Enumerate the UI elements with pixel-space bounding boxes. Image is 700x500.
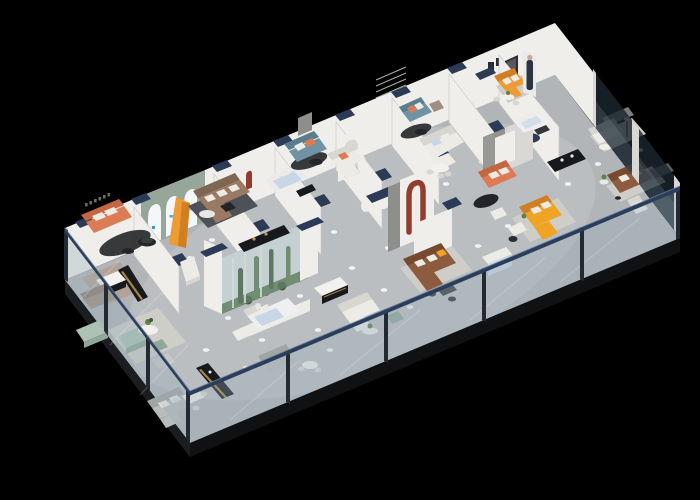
shelf-item bbox=[560, 158, 563, 161]
dining-table bbox=[431, 164, 449, 173]
spotlight-glow bbox=[565, 182, 571, 186]
arch-logo-mark bbox=[152, 226, 155, 229]
sign-glyph bbox=[85, 203, 88, 206]
sign-glyph bbox=[90, 201, 93, 204]
spotlight-glow bbox=[209, 238, 215, 242]
shelf-item bbox=[264, 232, 267, 235]
office-chair bbox=[509, 236, 518, 242]
showroom-render bbox=[0, 0, 700, 500]
sign-glyph bbox=[94, 199, 97, 202]
counter-item bbox=[209, 371, 212, 374]
sign-glyph bbox=[99, 197, 102, 200]
red-arch-side-face bbox=[388, 182, 400, 252]
small-table bbox=[356, 149, 368, 155]
dining-chair bbox=[438, 174, 445, 179]
spotlight-glow bbox=[443, 182, 449, 186]
glass-post bbox=[676, 186, 680, 240]
plant bbox=[602, 175, 607, 180]
cafe-chair bbox=[513, 101, 520, 106]
glass-post bbox=[580, 227, 584, 281]
spotlight-glow bbox=[297, 294, 303, 298]
sign-glyph bbox=[108, 193, 111, 196]
spotlight-glow bbox=[381, 288, 387, 292]
round-coffee-table bbox=[415, 129, 427, 135]
spotlight-glow bbox=[315, 328, 321, 332]
side-table bbox=[122, 248, 134, 254]
table-plant bbox=[506, 91, 510, 95]
side-table bbox=[600, 180, 609, 185]
spotlight-glow bbox=[259, 338, 265, 342]
arch-logo-mark bbox=[170, 215, 174, 218]
round-coffee-table bbox=[199, 210, 215, 218]
table-plant bbox=[149, 318, 153, 322]
spotlight-glow bbox=[595, 162, 601, 166]
glass-post bbox=[286, 350, 290, 404]
promo-standee-figure bbox=[527, 60, 534, 90]
spotlight-glow bbox=[475, 244, 481, 248]
small-item bbox=[615, 196, 621, 200]
round-coffee-table bbox=[310, 159, 323, 165]
spotlight-glow bbox=[225, 316, 231, 320]
shelf-item bbox=[570, 154, 573, 157]
floorplan-canvas bbox=[0, 0, 700, 500]
round-coffee-table-top bbox=[141, 238, 153, 244]
shelf-item bbox=[252, 237, 255, 240]
spotlight-glow bbox=[203, 348, 209, 352]
red-niche bbox=[246, 171, 252, 190]
glass-post bbox=[482, 268, 486, 322]
dining-chair bbox=[445, 172, 452, 177]
cafe-chair bbox=[494, 97, 501, 102]
spotlight-glow bbox=[349, 266, 355, 270]
glass-post-white bbox=[632, 120, 639, 184]
glass-post-white bbox=[593, 69, 596, 128]
spotlight-glow bbox=[331, 230, 337, 234]
plant bbox=[522, 214, 527, 219]
glass-post bbox=[384, 309, 388, 363]
promo-standee-head bbox=[527, 55, 532, 60]
sign-glyph bbox=[103, 195, 106, 198]
dining-chair bbox=[427, 170, 434, 175]
